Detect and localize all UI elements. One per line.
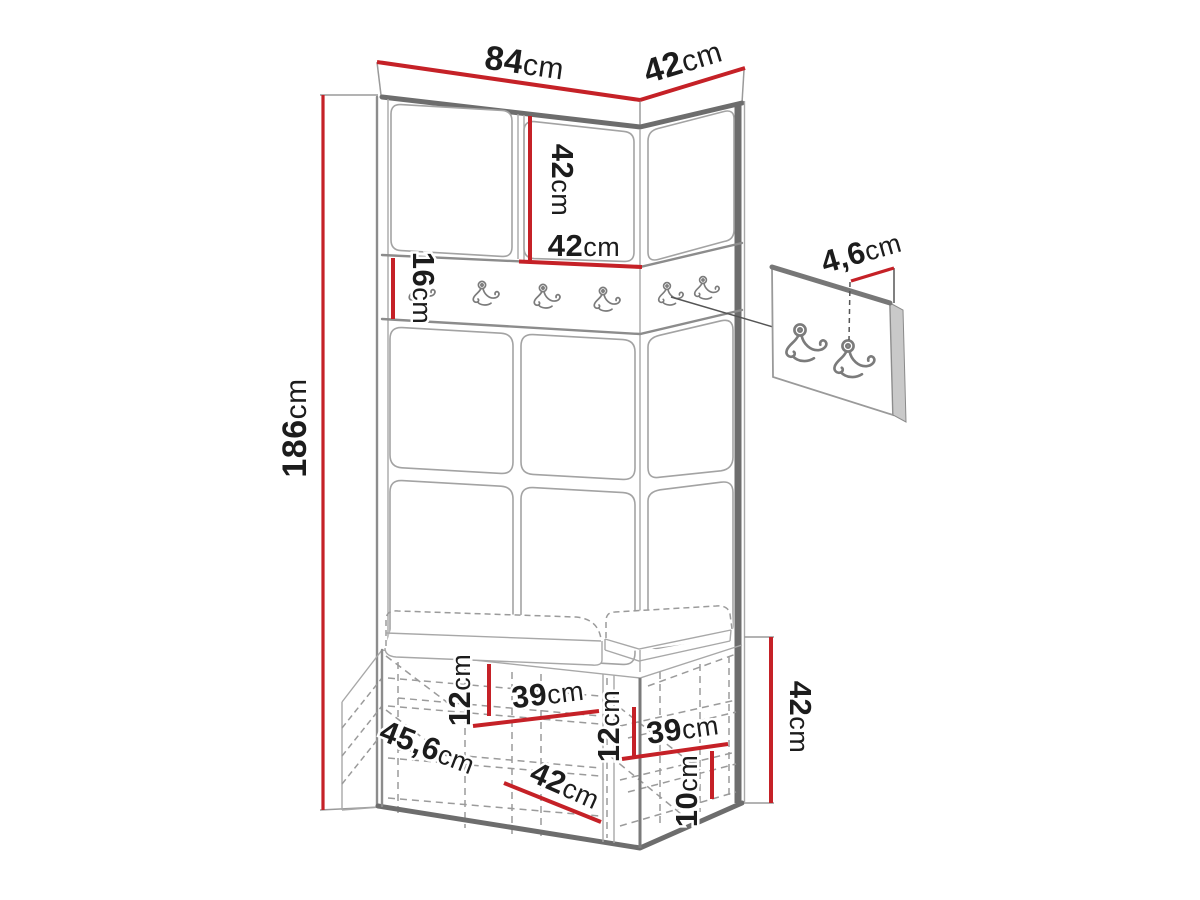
dimension-label-total-height: 186cm: [276, 378, 314, 477]
panel-row1-col2: [521, 335, 635, 480]
dimension-label-side-width: 42cm: [639, 32, 726, 92]
total-height-dimension: 186cm: [276, 95, 380, 810]
wardrobe-diagram-svg: 186cm 84cm 42cm: [0, 0, 1200, 900]
furniture-dimension-drawing: 186cm 84cm 42cm: [0, 0, 1200, 900]
coat-hook-icon: [534, 284, 560, 308]
detail-panel-thickness: [890, 303, 906, 422]
cabinet-door-left: [391, 105, 512, 257]
dimension-line-left-shelf-width: [473, 711, 599, 726]
coat-hook-icon: [594, 287, 620, 311]
coat-hook-icon: [473, 281, 499, 305]
detail-panel-face: [772, 267, 893, 415]
coat-hook-icon: [659, 283, 683, 305]
cabinet-door-side: [648, 111, 734, 260]
dimension-label-cabinet-width: 42cm: [548, 228, 620, 263]
panel-row1-side: [648, 320, 733, 477]
coat-hook-icon: [695, 277, 719, 299]
dimension-label-hook-panel: 4,6cm: [817, 224, 905, 280]
connector-left: [377, 62, 381, 95]
dimension-label-rail-height: 16cm: [406, 252, 441, 324]
panel-row1-col1: [390, 328, 513, 474]
connector-right: [742, 70, 744, 103]
dimension-label-bench-height: 42cm: [783, 681, 818, 753]
dimension-label-cabinet-height: 42cm: [545, 144, 580, 216]
dimension-label-right-shelf-width: 39cm: [644, 706, 721, 751]
dimension-label-left-shelf-spacing: 12cm: [442, 654, 477, 726]
dimension-label-right-shelf-spacing: 12cm: [591, 690, 626, 762]
dimension-label-bottom-gap: 10cm: [669, 755, 704, 827]
dimension-label-left-shelf-width: 39cm: [510, 672, 586, 716]
